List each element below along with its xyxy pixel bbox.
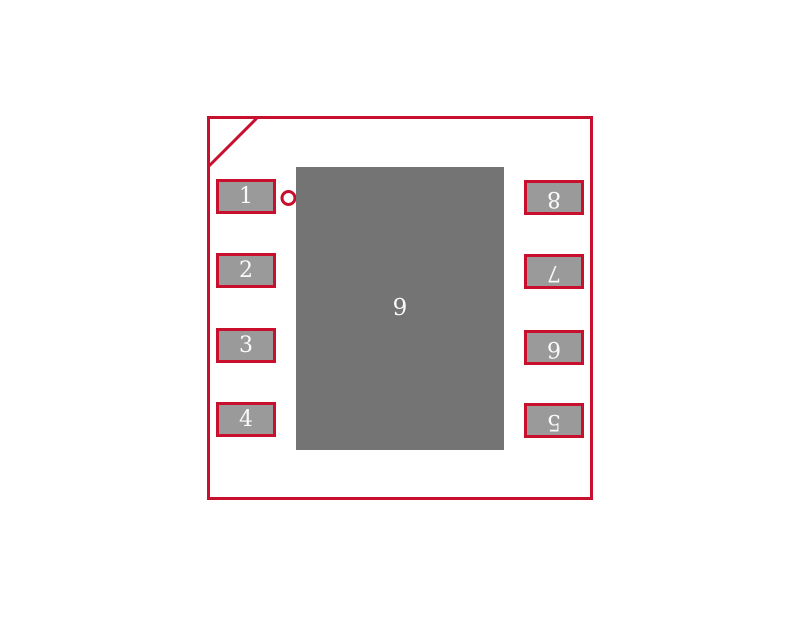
thermal-pad-9: 9 (296, 167, 504, 450)
pad-6: 6 (524, 330, 584, 365)
pad-number: 6 (547, 337, 561, 359)
pad-5: 5 (524, 403, 584, 438)
pad-number: 4 (239, 409, 253, 431)
pad-1: 1 (216, 179, 276, 214)
pad-number: 2 (239, 260, 253, 282)
pad-8: 8 (524, 180, 584, 215)
pad-4: 4 (216, 402, 276, 437)
pad-number: 1 (239, 186, 253, 208)
pad-number: 8 (547, 187, 561, 209)
pad-number: 5 (547, 410, 561, 432)
pad-2: 2 (216, 253, 276, 288)
footprint-canvas: 9 1 2 3 4 8 7 6 5 (0, 0, 800, 618)
pad-3: 3 (216, 328, 276, 363)
pad-number: 3 (239, 335, 253, 357)
pad-7: 7 (524, 254, 584, 289)
pad-number: 7 (547, 261, 561, 283)
thermal-pad-number: 9 (393, 297, 408, 320)
